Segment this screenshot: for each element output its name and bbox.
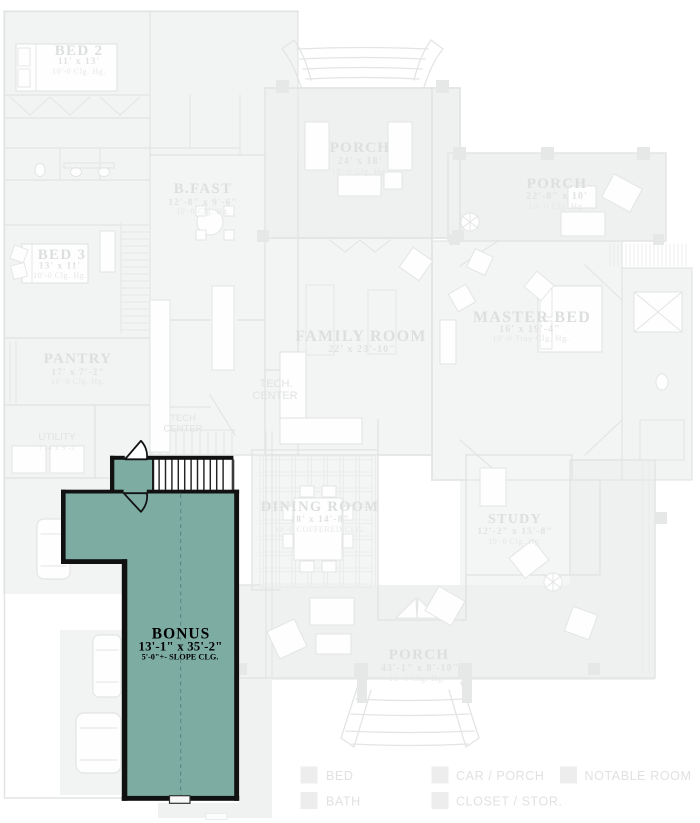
svg-text:10'-0 Tray Clg. Hg.: 10'-0 Tray Clg. Hg. [492,333,569,343]
svg-text:11' x 13': 11' x 13' [58,57,100,67]
svg-text:CENTER: CENTER [163,424,202,435]
svg-text:UTILITY: UTILITY [38,432,76,443]
svg-text:10'-0 COFFERED CLG.: 10'-0 COFFERED CLG. [275,525,365,534]
svg-text:13' x 11': 13' x 11' [39,262,81,272]
svg-text:18' x 14'-8": 18' x 14'-8" [291,515,350,525]
svg-text:5'-0"+- SLOPE CLG.: 5'-0"+- SLOPE CLG. [142,652,219,661]
svg-text:DINING ROOM: DINING ROOM [261,499,380,515]
svg-text:FAMILY ROOM: FAMILY ROOM [295,328,426,345]
svg-text:22' x 23'-10": 22' x 23'-10" [328,344,395,355]
svg-text:10'-0 Clg. Hg.: 10'-0 Clg. Hg. [33,271,87,280]
svg-text:CENTER: CENTER [252,390,297,402]
svg-text:PORCH: PORCH [527,176,588,192]
svg-text:10'-0 Clg. Hg.: 10'-0 Clg. Hg. [529,201,586,211]
svg-text:12'-2" x 15'-8": 12'-2" x 15'-8" [477,527,552,537]
svg-text:PORCH: PORCH [330,140,391,156]
svg-text:10'-0 Clg. Hg.: 10'-0 Clg. Hg. [332,166,389,176]
svg-text:PORCH: PORCH [389,647,450,663]
svg-text:CAR / PORCH: CAR / PORCH [456,769,545,783]
svg-text:10'-0 Clg. Hg.: 10'-0 Clg. Hg. [389,673,446,683]
svg-text:10'-0 Clg. Hg.: 10'-0 Clg. Hg. [52,67,106,76]
svg-text:TECH: TECH [170,413,196,424]
svg-text:B.FAST: B.FAST [174,181,233,197]
svg-text:CLOSET / STOR.: CLOSET / STOR. [456,795,563,809]
svg-text:7'-4 x 9'-2: 7'-4 x 9'-2 [39,443,76,452]
svg-text:10'-0 Clg. Hg.: 10'-0 Clg. Hg. [488,537,542,546]
svg-text:PANTRY: PANTRY [44,351,113,367]
svg-text:BATH: BATH [326,795,361,809]
svg-text:10'-0 Clg. Hg.: 10'-0 Clg. Hg. [176,207,230,216]
svg-text:TECH.: TECH. [260,378,293,390]
svg-text:10'-0 Clg. Hg.: 10'-0 Clg. Hg. [51,377,105,386]
svg-text:NOTABLE ROOM: NOTABLE ROOM [585,769,692,783]
svg-text:STUDY: STUDY [488,512,542,527]
svg-text:BED: BED [326,769,354,783]
